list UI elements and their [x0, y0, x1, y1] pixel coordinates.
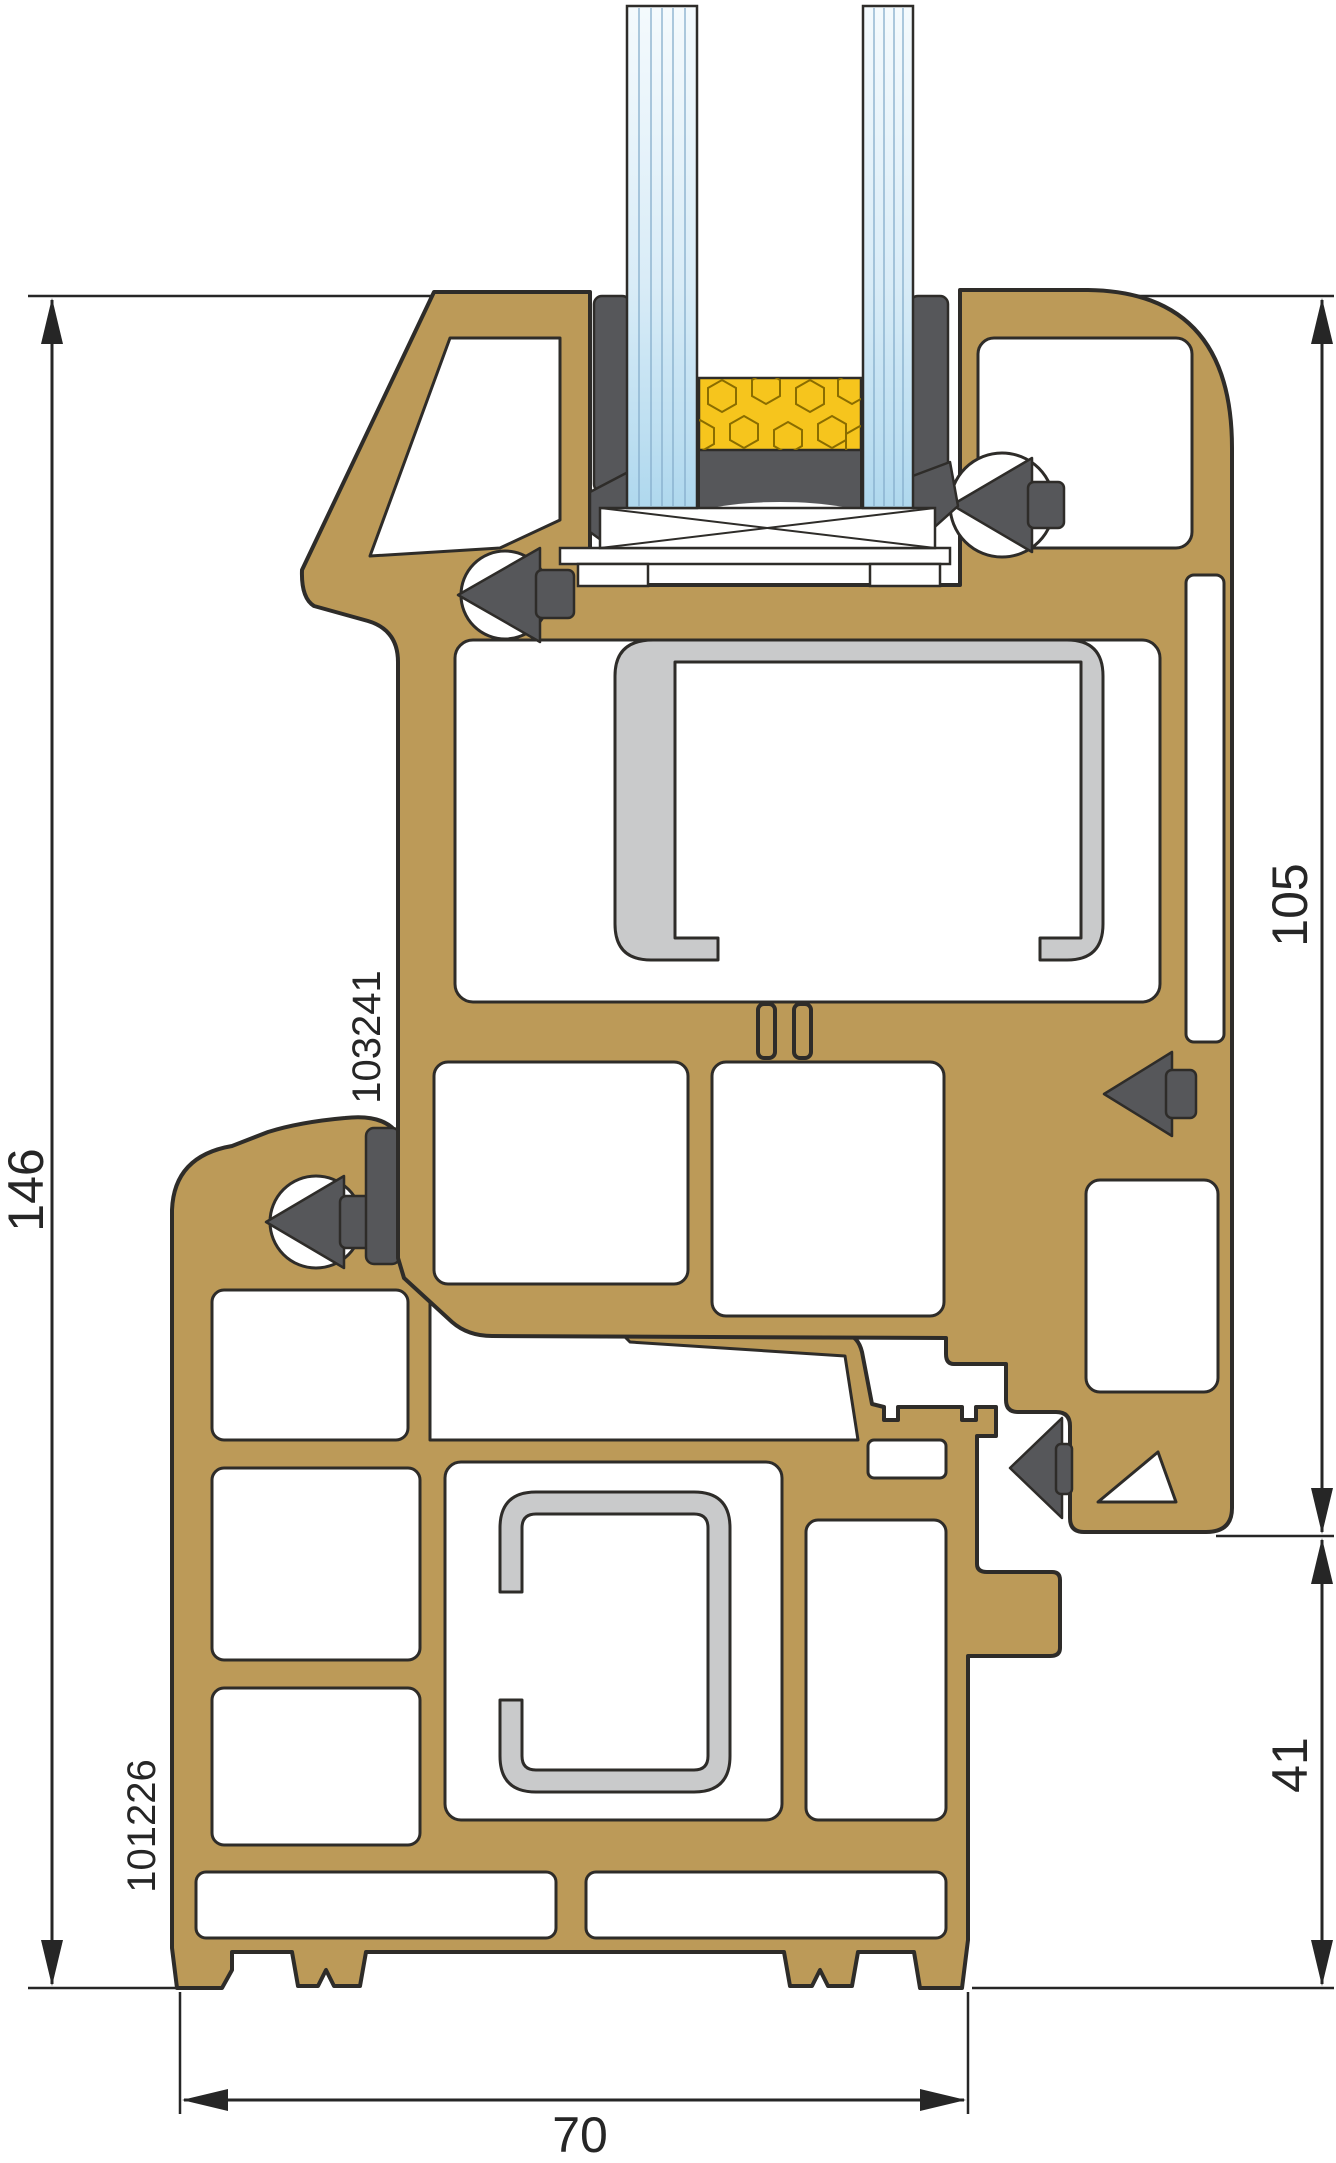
arrow-down-icon: [41, 1940, 63, 1986]
dimension-label-70: 70: [552, 2107, 608, 2163]
frame-rebate-undercut: [868, 1440, 946, 1478]
sash-chamber-right-wall: [1186, 575, 1224, 1042]
screw-boss-finger: [794, 1004, 811, 1058]
sash-frame-gasket-center: [1010, 1418, 1072, 1518]
arrow-up-icon: [1311, 298, 1333, 344]
arrow-down-icon: [1311, 1488, 1333, 1534]
arrow-left-icon: [182, 2089, 228, 2111]
frame-chamber-bottom-right: [586, 1872, 946, 1938]
arrow-up-icon: [41, 298, 63, 344]
glass-pane-inner: [863, 6, 913, 508]
setting-block: [600, 508, 935, 548]
dimension-label-146: 146: [0, 1148, 54, 1231]
sash-chamber-bottom-center: [712, 1062, 944, 1316]
frame-chamber-right: [806, 1520, 946, 1820]
article-number-sash: 103241: [345, 970, 389, 1103]
article-number-frame: 101226: [120, 1759, 164, 1892]
frame-chamber-left-top: [212, 1290, 408, 1440]
sash-chamber-bottom-left: [434, 1062, 688, 1284]
dimension-label-41: 41: [1262, 1737, 1318, 1793]
edge-sealant: [699, 450, 861, 510]
dimension-frame-depth: 70: [180, 1992, 968, 2163]
dimension-label-105: 105: [1262, 863, 1318, 946]
glass-pane-outer: [627, 6, 697, 508]
packer-plate: [560, 548, 950, 564]
cross-section-drawing: 146 105 41 70: [0, 0, 1336, 2163]
frame-chamber-bottom-left: [196, 1872, 556, 1938]
frame-chamber-left-low: [212, 1688, 420, 1845]
profile-section-svg: 146 105 41 70: [0, 0, 1336, 2163]
arrow-down-icon: [1311, 1940, 1333, 1986]
packer-plate: [870, 564, 940, 586]
arrow-right-icon: [920, 2089, 966, 2111]
packer-plate: [578, 564, 648, 586]
arrow-up-icon: [1311, 1538, 1333, 1584]
frame-chamber-left-mid: [212, 1468, 420, 1660]
screw-boss-finger: [758, 1004, 775, 1058]
sash-flap-chamber: [1086, 1180, 1218, 1392]
